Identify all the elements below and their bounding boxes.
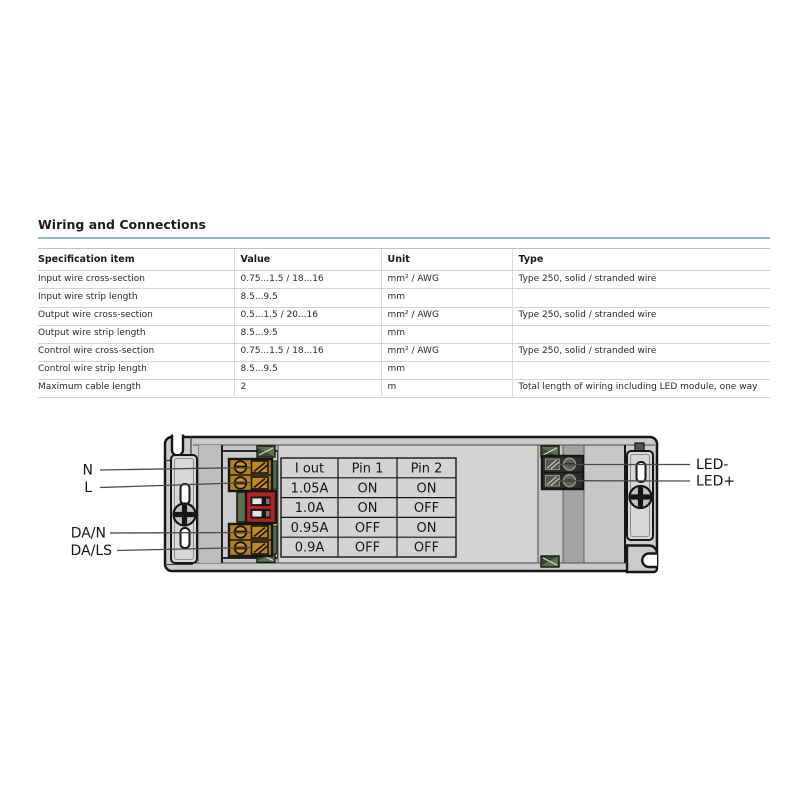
dip-pin1-slider — [252, 498, 262, 505]
mounting-slot-top-left — [172, 435, 183, 456]
label-da-ls: DA/LS — [70, 543, 112, 559]
left-strain-relief-plate — [171, 455, 197, 563]
mounting-tab-bottom-right — [627, 546, 657, 573]
datasheet-page: Wiring and Connections Specification ite… — [0, 0, 800, 800]
clip-green-bottom-right — [541, 556, 559, 567]
dip-table-cell: 0.9A — [295, 541, 325, 556]
led-output-terminal-block — [542, 456, 583, 489]
dip-table-header: I out — [295, 462, 324, 477]
input-terminal-block — [229, 459, 272, 491]
wiring-diagram: I out Pin 1 Pin 2 1.05A ON ON 1.0A ON OF… — [0, 0, 800, 800]
dip-table-header: Pin 2 — [411, 462, 443, 477]
dali-terminal-block — [229, 524, 272, 556]
dip-table-cell: OFF — [414, 541, 439, 556]
dip-table-cell: ON — [417, 481, 437, 496]
label-led-minus: LED- — [696, 457, 728, 473]
leader-line-da-n — [110, 533, 251, 534]
dip-switch — [237, 491, 276, 523]
dip-table-header: Pin 1 — [352, 462, 384, 477]
dip-table-cell: OFF — [414, 501, 439, 516]
dip-table-cell: 1.0A — [295, 501, 325, 516]
dip-table-cell: ON — [358, 481, 378, 496]
dip-table-cell: ON — [417, 521, 437, 536]
dip-setting-table: I out Pin 1 Pin 2 1.05A ON ON 1.0A ON OF… — [281, 458, 456, 557]
mounting-cutout — [642, 554, 657, 568]
dip-table-cell: OFF — [355, 521, 380, 536]
dip-table-cell: 1.05A — [291, 481, 329, 496]
cable-slot — [181, 484, 190, 504]
right-phillips-screw — [630, 486, 652, 508]
dip-pin2-slider — [252, 511, 262, 518]
label-l: L — [84, 480, 92, 496]
clip-green-top-left — [257, 446, 275, 457]
dip-table-cell: ON — [358, 501, 378, 516]
label-n: N — [83, 463, 93, 479]
label-da-n: DA/N — [71, 526, 106, 542]
dip-table-cell: OFF — [355, 541, 380, 556]
label-led-plus: LED+ — [696, 474, 735, 490]
left-phillips-screw — [174, 504, 196, 526]
cable-slot — [181, 528, 190, 548]
dip-table-cell: 0.95A — [291, 521, 329, 536]
